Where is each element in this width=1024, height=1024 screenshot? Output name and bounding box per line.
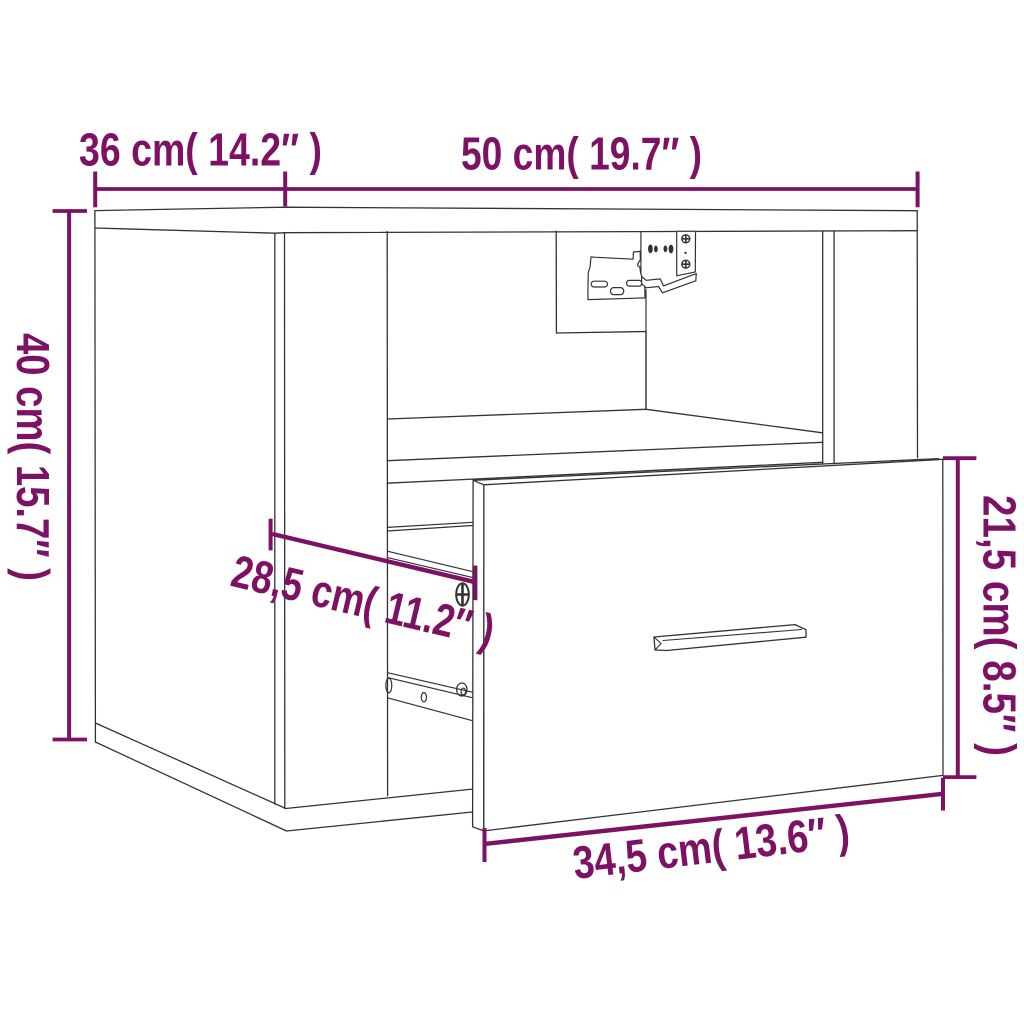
svg-text:36 cm( 14.2″ ): 36 cm( 14.2″ ) <box>79 124 322 176</box>
svg-text:21,5 cm( 8.5″ ): 21,5 cm( 8.5″ ) <box>974 495 1024 756</box>
svg-text:50 cm( 19.7″ ): 50 cm( 19.7″ ) <box>461 128 702 180</box>
svg-text:40 cm( 15.7″ ): 40 cm( 15.7″ ) <box>7 333 59 581</box>
